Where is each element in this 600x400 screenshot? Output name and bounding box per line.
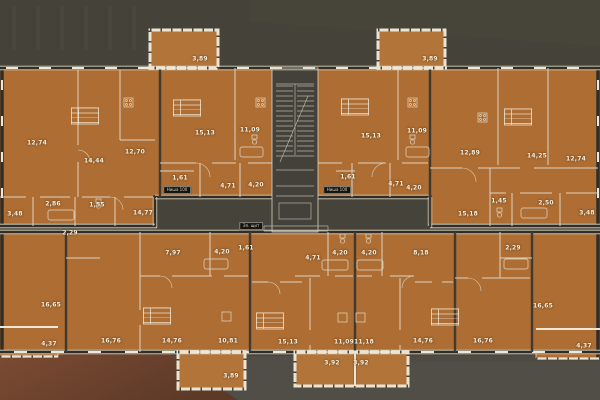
room-area-label: 4,20 (332, 250, 348, 257)
room-area-label: 3,89 (223, 373, 239, 380)
room-area-label: 16,65 (41, 302, 61, 309)
room-area-label: 3,48 (579, 210, 595, 217)
room-area-label: 3,89 (422, 56, 438, 63)
room-area-label: 11,09 (407, 128, 427, 135)
room-area-label: 11,09 (240, 127, 260, 134)
room-area-label: 4,37 (41, 341, 57, 348)
room-area-label: 3,48 (7, 211, 23, 218)
room-area-label: 3,89 (192, 56, 208, 63)
room-area-label: 2,29 (505, 245, 521, 252)
apartment-stamp (173, 100, 201, 117)
room-area-label: 3,92 (353, 360, 369, 367)
room-area-label: 4,20 (361, 250, 377, 257)
room-area-label: 4,20 (406, 185, 422, 192)
room-area-label: 14,77 (133, 210, 153, 217)
room-area-label: 16,76 (101, 338, 121, 345)
room-area-label: 2,29 (62, 230, 78, 237)
room-area-label: 11,18 (354, 339, 374, 346)
room-area-label: 3,92 (324, 360, 340, 367)
room-area-label: 4,37 (576, 343, 592, 350)
room-area-label: 14,76 (162, 338, 182, 345)
apartment-stamp (256, 313, 284, 330)
apartment-stamp (143, 308, 171, 325)
room-area-label: 12,74 (566, 156, 586, 163)
room-area-label: 12,70 (125, 149, 145, 156)
room-area-label: 4,20 (248, 182, 264, 189)
labels-layer: 12,7414,4412,703,482,861,5514,773,8915,1… (0, 0, 600, 400)
room-area-label: 15,13 (361, 133, 381, 140)
apartment-stamp (341, 99, 369, 116)
room-area-label: 14,76 (413, 338, 433, 345)
floor-plan-canvas: 12,7414,4412,703,482,861,5514,773,8915,1… (0, 0, 600, 400)
room-area-label: 1,55 (89, 202, 105, 209)
room-area-label: 2,50 (538, 200, 554, 207)
room-area-label: 7,97 (165, 250, 181, 257)
room-area-label: 15,13 (278, 339, 298, 346)
room-area-label: 4,20 (214, 249, 230, 256)
room-area-label: 4,71 (388, 181, 404, 188)
apartment-stamp (431, 309, 459, 326)
room-area-label: 11,09 (334, 339, 354, 346)
niche-label: Ниша 100 (323, 186, 351, 194)
room-area-label: 8,18 (413, 250, 429, 257)
room-area-label: 10,81 (218, 338, 238, 345)
room-area-label: 15,18 (458, 211, 478, 218)
room-area-label: 12,89 (460, 150, 480, 157)
room-area-label: 16,76 (473, 338, 493, 345)
room-area-label: 1,45 (491, 198, 507, 205)
electrical-panel-label: Эл. щит (239, 222, 263, 230)
room-area-label: 14,25 (527, 153, 547, 160)
room-area-label: 4,71 (220, 183, 236, 190)
room-area-label: 1,61 (340, 174, 356, 181)
room-area-label: 2,86 (45, 201, 61, 208)
niche-label: Ниша 100 (163, 186, 191, 194)
room-area-label: 16,65 (533, 303, 553, 310)
apartment-stamp (71, 108, 99, 125)
room-area-label: 1,61 (238, 245, 254, 252)
room-area-label: 1,61 (172, 175, 188, 182)
room-area-label: 12,74 (27, 140, 47, 147)
room-area-label: 14,44 (84, 158, 104, 165)
room-area-label: 15,13 (195, 130, 215, 137)
room-area-label: 4,71 (305, 255, 321, 262)
apartment-stamp (504, 109, 532, 126)
